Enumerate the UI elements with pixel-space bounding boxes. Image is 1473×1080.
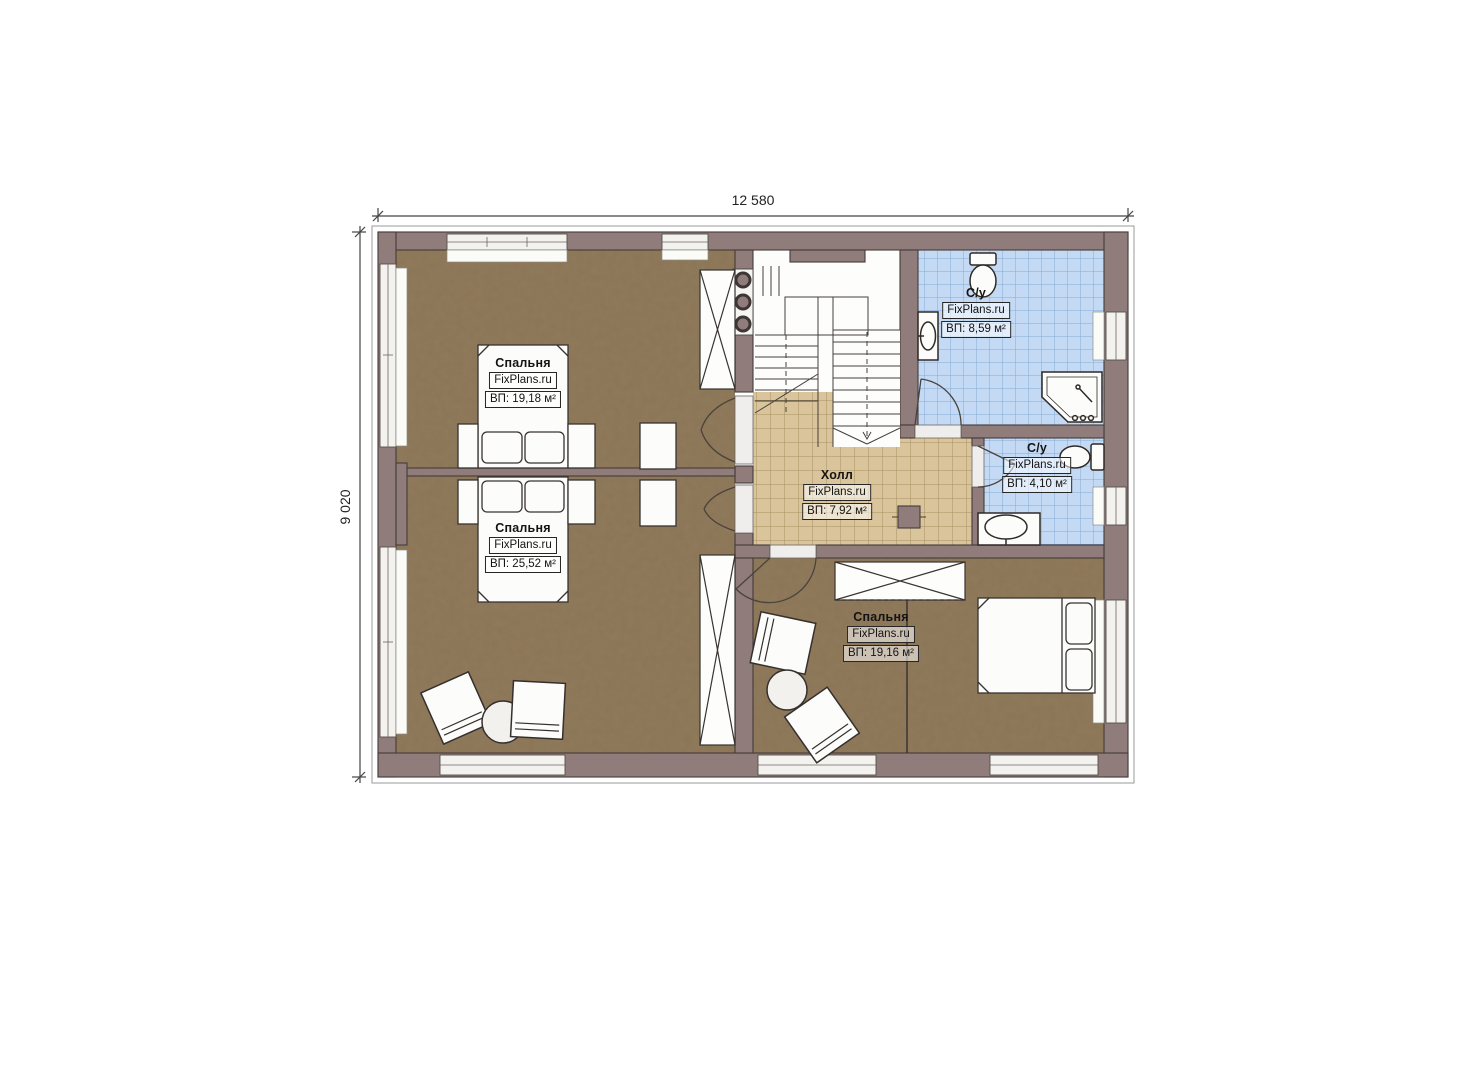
- hall-duct-column: [898, 506, 920, 528]
- wall-w1b: [735, 466, 753, 483]
- nightstand: [568, 424, 595, 468]
- window-sill: [1093, 487, 1104, 525]
- room-name: Спальня: [495, 356, 550, 370]
- flue-shafts: [733, 269, 753, 335]
- room-name: С/у: [966, 286, 986, 300]
- dresser: [640, 480, 676, 526]
- room-label-bedroom-bottom-left: Спальня FixPlans.ru ВП: 25,52 м²: [485, 521, 561, 573]
- dimension-top-line: [372, 208, 1134, 222]
- room-watermark: FixPlans.ru: [1003, 457, 1071, 474]
- wall-w5a: [972, 438, 984, 446]
- room-watermark: FixPlans.ru: [803, 484, 871, 501]
- room-watermark: FixPlans.ru: [489, 537, 557, 554]
- wardrobe-bottom-right: [835, 562, 965, 600]
- sink-right: [978, 513, 1040, 545]
- page: { "plan": { "dimension_top": "12 580", "…: [0, 0, 1473, 1080]
- wall-stair-stub: [790, 250, 865, 262]
- room-watermark: FixPlans.ru: [489, 372, 557, 389]
- room-label-bathroom-top: С/у FixPlans.ru ВП: 8,59 м²: [941, 286, 1011, 338]
- room-label-hall: Холл FixPlans.ru ВП: 7,92 м²: [802, 468, 872, 520]
- room-area: ВП: 25,52 м²: [485, 556, 561, 573]
- wall-pier-left: [396, 463, 407, 545]
- wall-stair-bath: [900, 250, 918, 425]
- room-label-bedroom-top-left: Спальня FixPlans.ru ВП: 19,18 м²: [485, 356, 561, 408]
- dimension-top-drawing: 12 580: [368, 192, 1138, 222]
- window-sill: [396, 550, 407, 734]
- room-area: ВП: 19,16 м²: [843, 645, 919, 662]
- dimension-top-label: 12 580: [732, 192, 775, 208]
- room-label-bedroom-bottom-right: Спальня FixPlans.ru ВП: 19,16 м²: [843, 610, 919, 662]
- dimension-left-line: [352, 226, 366, 783]
- room-name: С/у: [1027, 441, 1047, 455]
- armchair: [750, 612, 816, 675]
- wall-w6b: [816, 545, 1104, 558]
- room-watermark: FixPlans.ru: [847, 626, 915, 643]
- window-sill: [396, 268, 407, 446]
- dimension-left-label: 9 020: [337, 489, 353, 524]
- dimension-left: 9 020: [336, 222, 366, 787]
- floor-plan: Спальня FixPlans.ru ВП: 19,18 м² Спальня…: [368, 222, 1138, 787]
- dimension-top: 12 580: [368, 192, 1138, 222]
- room-area: ВП: 4,10 м²: [1002, 476, 1072, 493]
- wall-w4a: [900, 425, 915, 438]
- window-sill: [1093, 312, 1104, 360]
- sink-top: [918, 312, 938, 360]
- dimension-left-drawing: 9 020: [336, 222, 366, 787]
- room-area: ВП: 19,18 м²: [485, 391, 561, 408]
- wall-w1c: [735, 533, 753, 753]
- room-area: ВП: 8,59 м²: [941, 321, 1011, 338]
- side-table: [767, 670, 807, 710]
- room-name: Спальня: [853, 610, 908, 624]
- nightstand: [458, 480, 478, 524]
- wardrobe-bottom-left: [700, 555, 735, 745]
- nightstand: [458, 424, 478, 468]
- wall-w6a: [735, 545, 770, 558]
- room-name: Спальня: [495, 521, 550, 535]
- wardrobe-top-left: [700, 270, 735, 389]
- floor-plan-drawing: [368, 222, 1138, 787]
- room-name: Холл: [821, 468, 853, 482]
- window-sill: [447, 250, 567, 262]
- room-area: ВП: 7,92 м²: [802, 503, 872, 520]
- room-watermark: FixPlans.ru: [942, 302, 1010, 319]
- wall-w4b: [961, 425, 1104, 438]
- nightstand: [568, 480, 595, 524]
- wall-partition-bedrooms: [396, 468, 735, 476]
- dresser: [640, 423, 676, 469]
- room-label-bathroom-right: С/у FixPlans.ru ВП: 4,10 м²: [1002, 441, 1072, 493]
- armchair: [511, 681, 566, 740]
- window-sill: [662, 250, 708, 260]
- bed-bottom-right: [978, 598, 1095, 693]
